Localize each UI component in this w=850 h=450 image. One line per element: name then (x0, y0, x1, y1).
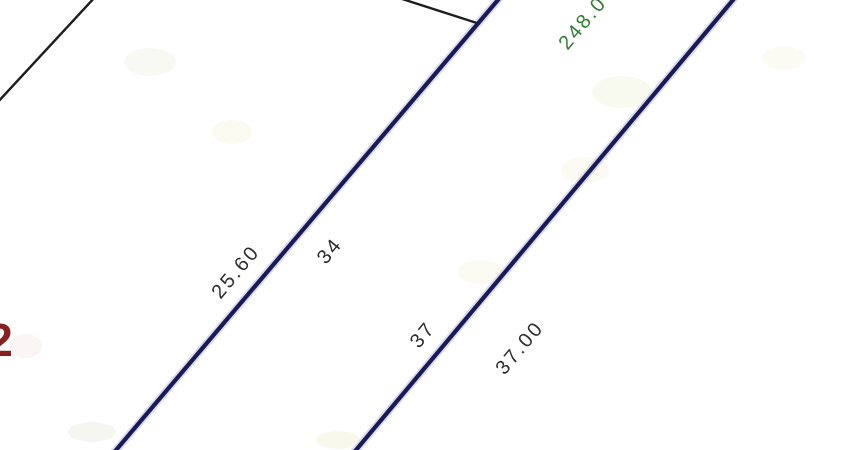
lot-number-label-37: 37 (406, 317, 440, 352)
adjacent-boundary-lines (0, 0, 480, 104)
dimension-label-37-00: 37.00 (491, 317, 548, 379)
background-smudge (124, 48, 176, 76)
cadastral-map-viewport: 25.60 34 37 37.00 248.0 2 (0, 0, 850, 450)
distance-label-248-0: 248.0 (554, 0, 611, 54)
cadastral-drawing: 25.60 34 37 37.00 248.0 2 (0, 0, 850, 450)
parcel-number-label-2: 2 (0, 314, 13, 366)
adjacent-boundary-line-top-middle (396, 0, 480, 24)
background-smudge (68, 422, 116, 442)
background-smudge (10, 334, 42, 358)
adjacent-boundary-line-top-left (0, 0, 96, 104)
background-smudge (212, 120, 252, 144)
annotation-labels: 25.60 34 37 37.00 248.0 2 (0, 0, 612, 379)
lot-number-label-34: 34 (313, 233, 347, 268)
background-smudge (316, 431, 360, 449)
boundary-line-halos (111, 0, 738, 450)
dimension-label-25-60: 25.60 (207, 241, 264, 303)
parcel-boundary-lines (111, 0, 738, 450)
background-smudge (762, 46, 806, 70)
